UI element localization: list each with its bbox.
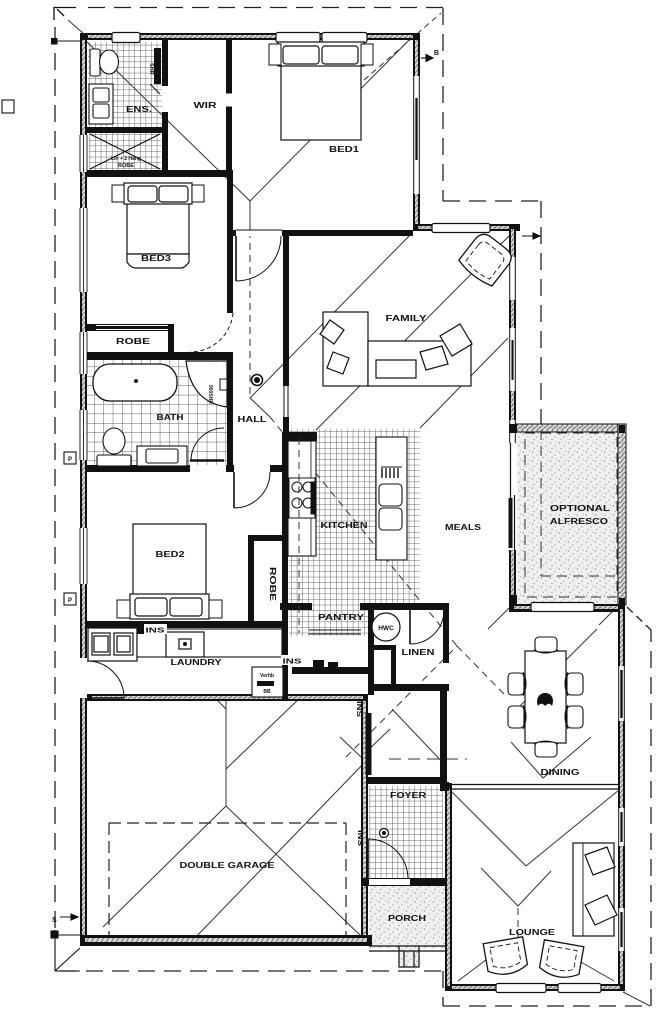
svg-text:Lin + 2 Hang: Lin + 2 Hang [111,156,141,162]
svg-text:PANTRY: PANTRY [318,613,365,622]
svg-text:INS: INS [283,657,302,666]
svg-text:P: P [68,457,72,463]
svg-text:LAUNDRY: LAUNDRY [171,658,223,667]
svg-text:LINEN: LINEN [402,648,435,657]
svg-text:ROBE: ROBE [116,337,151,346]
svg-text:PORCH: PORCH [388,914,426,923]
svg-text:B: B [434,50,439,57]
svg-text:FAMILY: FAMILY [386,314,428,323]
svg-text:KITCHEN: KITCHEN [321,521,368,530]
svg-text:MEALS: MEALS [445,523,482,532]
svg-text:900SHR: 900SHR [207,385,213,404]
svg-text:LOUNGE: LOUNGE [509,928,556,937]
svg-text:P: P [68,598,72,604]
svg-text:WIR: WIR [194,101,217,110]
svg-text:OPTIONAL: OPTIONAL [550,504,610,513]
svg-text:ROBE: ROBE [118,163,134,169]
svg-text:S: S [52,917,57,924]
svg-text:HALL: HALL [238,415,267,424]
svg-text:HWC: HWC [378,625,394,632]
svg-text:INS: INS [146,626,165,635]
svg-text:INS: INS [356,830,363,846]
svg-text:DOUBLE GARAGE: DOUBLE GARAGE [180,861,276,870]
svg-text:BATH: BATH [157,413,184,422]
svg-text:BED2: BED2 [156,550,186,559]
svg-text:DINING: DINING [541,768,580,777]
svg-text:ROBE: ROBE [268,567,277,602]
svg-text:BED1: BED1 [329,145,360,154]
svg-text:ENS.: ENS. [126,105,152,114]
svg-text:Verhb: Verhb [260,673,274,679]
svg-text:BB: BB [263,689,271,695]
svg-text:FOYER: FOYER [390,791,426,800]
svg-text:SHR: SHR [148,63,154,75]
svg-text:BED3: BED3 [141,254,172,263]
svg-text:INS: INS [355,701,362,717]
svg-text:ALFRESCO: ALFRESCO [550,517,608,526]
